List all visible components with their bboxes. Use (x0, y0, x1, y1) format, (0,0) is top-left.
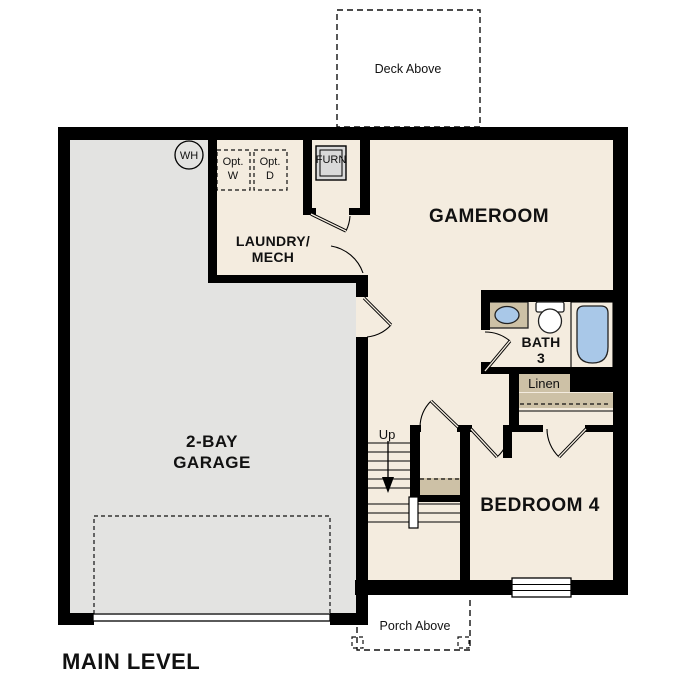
wall (570, 374, 613, 392)
opt-dryer-label-line2: D (266, 170, 274, 182)
furnace-label: FURN (316, 154, 347, 166)
opt-dryer-label-line1: Opt. (260, 156, 281, 168)
porch-above-label: Porch Above (380, 619, 451, 633)
wall (208, 140, 217, 282)
stairs-up-label: Up (379, 427, 396, 442)
room-label-laundry-line2: MECH (252, 249, 294, 265)
bedroom-closet-shelf (518, 393, 613, 408)
room-label-gameroom: GAMEROOM (429, 206, 549, 227)
wall (356, 337, 368, 625)
sink (495, 307, 519, 324)
water-heater-label: WH (180, 150, 198, 162)
wall (585, 425, 613, 432)
wall (355, 580, 628, 595)
floor-plan-page: GAMEROOM LAUNDRY/ MECH 2-BAY GARAGE BATH… (0, 0, 687, 687)
wall (410, 425, 420, 497)
wall (360, 140, 370, 215)
wall (509, 367, 519, 432)
wall (481, 290, 628, 302)
wall (481, 367, 613, 374)
page-title: MAIN LEVEL (62, 649, 200, 674)
bedroom-window (512, 578, 571, 597)
opt-washer-label-line2: W (228, 170, 239, 182)
floor-plan: GAMEROOM LAUNDRY/ MECH 2-BAY GARAGE BATH… (0, 0, 687, 687)
wall (303, 140, 312, 215)
wall (58, 127, 70, 625)
wall (58, 613, 94, 625)
room-label-linen: Linen (528, 376, 560, 391)
wall (208, 275, 368, 283)
toilet-bowl (539, 309, 562, 333)
opt-washer-label-line1: Opt. (223, 156, 244, 168)
room-label-bedroom4: BEDROOM 4 (480, 495, 600, 516)
wall (481, 302, 490, 330)
room-label-garage-line2: GARAGE (173, 453, 251, 472)
room-label-laundry-line1: LAUNDRY/ (236, 233, 310, 249)
deck-above-label: Deck Above (375, 62, 442, 76)
stair-newel (409, 497, 418, 528)
porch-post-right (458, 637, 469, 648)
wall (512, 425, 543, 432)
room-label-bath-line2: 3 (537, 350, 545, 366)
room-label-garage-line1: 2-BAY (186, 432, 238, 451)
bathtub (577, 306, 608, 363)
room-label-bath-line1: BATH (521, 334, 560, 350)
wall (410, 495, 470, 502)
garage-door (93, 614, 330, 621)
wall (460, 425, 470, 580)
wall (349, 208, 362, 215)
understair-shelf (420, 478, 460, 495)
wall (613, 127, 628, 595)
wall (58, 127, 628, 140)
